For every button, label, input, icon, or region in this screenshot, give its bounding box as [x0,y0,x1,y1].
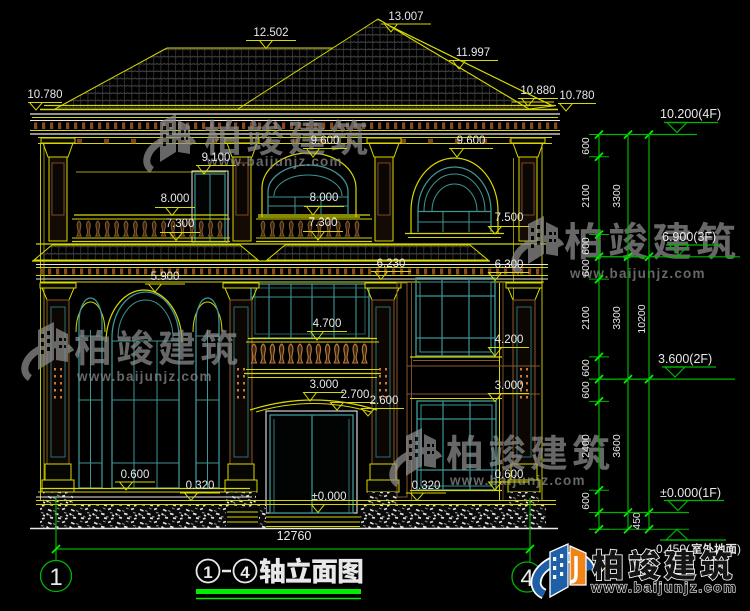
svg-text:1: 1 [203,563,212,582]
svg-text:0.320: 0.320 [412,480,441,492]
svg-text:2.700: 2.700 [341,389,370,401]
svg-text:8.000: 8.000 [161,193,190,205]
svg-text:3.000: 3.000 [310,379,339,391]
svg-text:9.100: 9.100 [202,152,231,164]
svg-text:600: 600 [580,259,592,277]
svg-text:7.500: 7.500 [495,212,524,224]
svg-text:450: 450 [631,512,643,530]
svg-text:3600: 3600 [611,434,623,458]
svg-text:6.300: 6.300 [495,259,524,271]
svg-text:0.600: 0.600 [495,469,524,481]
svg-text:±0.000(1F): ±0.000(1F) [660,486,721,500]
svg-text:600: 600 [580,492,592,510]
svg-text:10.200(4F): 10.200(4F) [660,107,721,121]
svg-text:600: 600 [580,237,592,255]
svg-text:8.000: 8.000 [310,192,339,204]
svg-text:10.780: 10.780 [27,89,62,101]
svg-text:7.300: 7.300 [309,217,338,229]
svg-text:6.900(3F): 6.900(3F) [662,230,716,244]
svg-text:5.900: 5.900 [151,271,180,283]
svg-text:10200: 10200 [636,304,648,333]
svg-text:9.600: 9.600 [457,135,486,147]
svg-text:2400: 2400 [580,434,592,458]
svg-text:4.700: 4.700 [313,318,342,330]
svg-text:3300: 3300 [611,184,623,208]
svg-text:600: 600 [580,137,592,155]
svg-text:0.320: 0.320 [186,480,215,492]
svg-text:9.600: 9.600 [311,135,340,147]
svg-text:3300: 3300 [611,306,623,330]
svg-text:www.baijunjz.com: www.baijunjz.com [76,369,213,384]
svg-text:0.600: 0.600 [121,469,150,481]
svg-text:2100: 2100 [580,184,592,208]
svg-text:12.502: 12.502 [253,27,288,39]
svg-text:): ) [737,542,741,556]
svg-text:7.300: 7.300 [166,218,195,230]
svg-text:www.baijunjz.com: www.baijunjz.com [590,579,737,595]
svg-text:4.200: 4.200 [495,334,524,346]
svg-text:600: 600 [580,381,592,399]
svg-text:2.600: 2.600 [370,395,399,407]
svg-text:600: 600 [580,359,592,377]
svg-text:6.230: 6.230 [377,258,406,270]
svg-text:±0.000: ±0.000 [311,491,346,503]
svg-text:10.780: 10.780 [559,90,594,102]
svg-text:11.997: 11.997 [456,47,490,59]
svg-text:10.880: 10.880 [520,85,555,97]
svg-text:4: 4 [240,563,250,582]
svg-text:2100: 2100 [580,306,592,330]
svg-text:12760: 12760 [277,529,312,543]
svg-text:3.600(2F): 3.600(2F) [658,352,712,366]
svg-text:1: 1 [49,564,62,591]
svg-text:13.007: 13.007 [388,11,423,23]
svg-text:3.000: 3.000 [495,380,524,392]
